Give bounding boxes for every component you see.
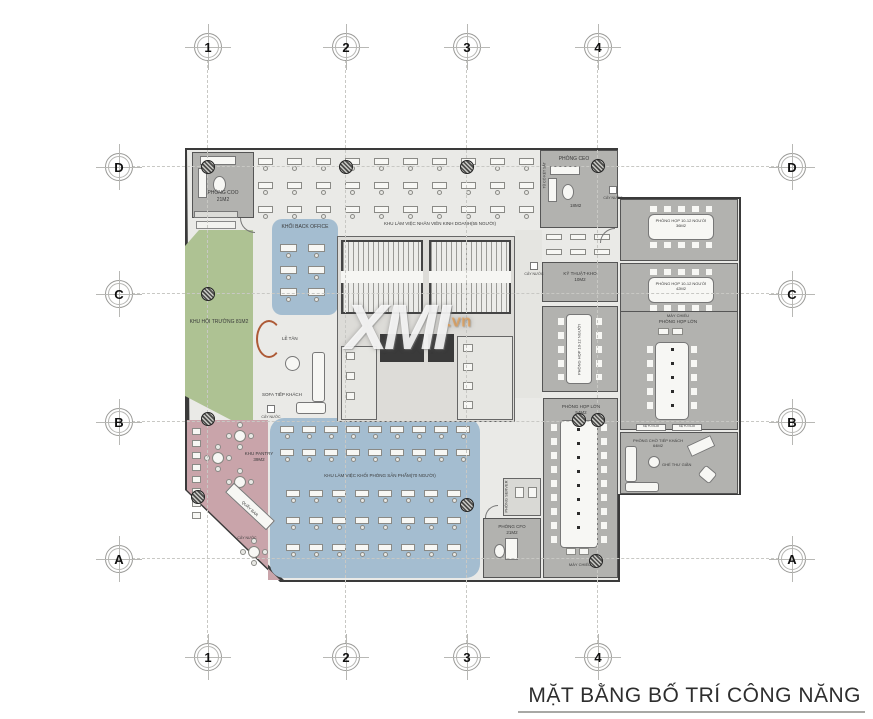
product-desks-band-1 — [280, 426, 294, 433]
column — [591, 413, 605, 427]
back-office-desks — [280, 288, 297, 296]
product-desks-band-2 — [424, 544, 438, 551]
chair — [373, 434, 378, 439]
chair — [452, 525, 457, 530]
back-office-desks — [280, 244, 297, 252]
sofa-horizontal — [296, 402, 326, 414]
product-desks-band-2 — [447, 490, 461, 497]
sales-desks — [316, 182, 331, 189]
projector-screen-north — [658, 328, 669, 335]
chair — [285, 434, 290, 439]
chair — [406, 498, 411, 503]
product-desks-band-2 — [424, 490, 438, 497]
stair-left-landing — [341, 271, 423, 283]
chair — [395, 434, 400, 439]
chair — [373, 457, 378, 462]
product-desks-band-1 — [324, 426, 338, 433]
meeting-large-north-chairs-right — [691, 346, 697, 416]
projector-screen-north — [672, 328, 683, 335]
room-meeting-large-north-label: PHÒNG HỌP LỚN — [643, 319, 713, 325]
chair — [262, 549, 268, 555]
cfo-desk — [505, 538, 518, 560]
chair — [263, 214, 268, 219]
column — [591, 159, 605, 173]
chair — [360, 525, 365, 530]
chair — [408, 190, 413, 195]
product-desks-band-1 — [434, 426, 448, 433]
chair — [337, 525, 342, 530]
product-desks-band-2 — [355, 490, 369, 497]
grid-marker-C: C — [778, 280, 806, 308]
grid-marker-D: D — [778, 153, 806, 181]
chair — [314, 498, 319, 503]
lounge-shelf-1-label: KỆ TỦ KHO — [636, 425, 666, 429]
product-desks-band-2 — [447, 544, 461, 551]
product-desks-band-2 — [355, 544, 369, 551]
coo-lower-cabinet — [194, 211, 238, 218]
meeting-2-chairs-top — [650, 269, 712, 275]
grid-marker-2: 2 — [332, 643, 360, 671]
chair — [329, 434, 334, 439]
pantry-label: KHU PANTRY 39M2 — [240, 451, 278, 463]
product-desks-band-2 — [309, 544, 323, 551]
product-desks-band-1 — [324, 449, 338, 456]
reception-desk — [256, 320, 282, 358]
chair — [237, 444, 243, 450]
back-office-desks — [308, 244, 325, 252]
chair — [452, 552, 457, 557]
chair — [351, 434, 356, 439]
cfo-chair — [494, 544, 505, 558]
product-desks-band-2 — [332, 490, 346, 497]
wc-fixture — [463, 401, 473, 409]
sales-desks — [374, 182, 389, 189]
sales-desks — [403, 206, 418, 213]
team-desks — [570, 234, 586, 240]
chair — [417, 434, 422, 439]
chair — [439, 457, 444, 462]
column — [201, 287, 215, 301]
water-label: CÂY NƯỚC — [598, 196, 628, 201]
chair — [314, 253, 319, 258]
sales-desks — [258, 206, 273, 213]
product-desks-band-2 — [401, 517, 415, 524]
pantry-table — [248, 546, 260, 558]
projector-screen-south — [566, 548, 576, 555]
work-area-sales-label: KHU LÀM VIỆC NHÂN VIÊN KINH DOANH(55 NGƯ… — [330, 221, 550, 227]
projector-screen-south — [579, 548, 589, 555]
sales-desks — [461, 206, 476, 213]
chair — [314, 552, 319, 557]
room-meeting-2-label: PHÒNG HỌP 10-12 NGƯỜI 42M2 — [650, 281, 712, 291]
product-desks-band-2 — [332, 544, 346, 551]
sales-desks — [519, 158, 534, 165]
grid-marker-3: 3 — [453, 33, 481, 61]
pantry-wall-chairs — [192, 428, 201, 435]
chair — [248, 433, 254, 439]
lounge-label: PHÒNG CHỜ TIẾP KHÁCH 64M2 — [626, 438, 690, 448]
chair — [495, 214, 500, 219]
chair — [314, 275, 319, 280]
room-server-label: PHÒNG SERVER — [503, 475, 508, 519]
water-label: CÂY NƯỚC — [519, 272, 549, 277]
chair — [248, 479, 254, 485]
water-label: CÂY NƯỚC — [256, 415, 286, 420]
product-desks-band-2 — [355, 517, 369, 524]
sales-desks — [432, 206, 447, 213]
wc-fixture — [346, 372, 355, 380]
chair — [429, 525, 434, 530]
grid-line-row-D — [132, 166, 779, 167]
pantry-wall-chairs — [192, 464, 201, 471]
server-fixture — [515, 487, 524, 498]
chair — [226, 433, 232, 439]
back-office-desks — [308, 288, 325, 296]
grid-marker-C: C — [105, 280, 133, 308]
product-desks-band-1 — [368, 449, 382, 456]
chair — [285, 457, 290, 462]
sales-desks — [519, 206, 534, 213]
grid-marker-4: 4 — [584, 33, 612, 61]
product-desks-band-2 — [286, 544, 300, 551]
grid-marker-B: B — [105, 408, 133, 436]
product-desks-band-1 — [346, 449, 360, 456]
grid-line-row-B — [132, 421, 779, 422]
column — [572, 413, 586, 427]
product-desks-band-1 — [390, 426, 404, 433]
grid-marker-4: 4 — [584, 643, 612, 671]
ceo-chair — [562, 184, 574, 200]
room-meeting-1-label: PHÒNG HỌP 10-12 NGƯỜI 36M2 — [650, 218, 712, 228]
chair — [291, 498, 296, 503]
meeting-large-south-chairs-right — [601, 424, 607, 544]
chair — [439, 434, 444, 439]
chair — [437, 214, 442, 219]
ceo-desk — [548, 178, 557, 202]
pantry-wall-chairs — [192, 476, 201, 483]
chair — [321, 214, 326, 219]
plan-title: MẶT BẰNG BỐ TRÍ CÔNG NĂNG — [518, 684, 865, 713]
chair — [321, 190, 326, 195]
grid-line-col-1 — [207, 60, 208, 648]
room-ceo-label: PHÒNG CEO — [550, 156, 598, 163]
product-desks-band-2 — [378, 544, 392, 551]
chair — [237, 468, 243, 474]
reception-label: LỄ TÂN — [282, 336, 312, 342]
watermark: XMI.vn — [345, 290, 471, 364]
chair — [360, 498, 365, 503]
product-desks-band-2 — [378, 490, 392, 497]
room-tech-label: KỸ THUẬT-KHO 10M2 — [546, 271, 614, 283]
product-desks-band-2 — [378, 517, 392, 524]
team-desks — [546, 234, 562, 240]
chair — [383, 498, 388, 503]
water-dispenser — [267, 405, 275, 413]
chair — [524, 190, 529, 195]
product-desks-band-1 — [280, 449, 294, 456]
wc-fixture — [463, 382, 473, 390]
column — [460, 498, 474, 512]
chair — [429, 498, 434, 503]
meeting-1-chairs-top — [650, 206, 712, 212]
column — [201, 412, 215, 426]
product-desks-band-2 — [424, 517, 438, 524]
chair — [406, 552, 411, 557]
chair — [452, 498, 457, 503]
sales-desks — [258, 182, 273, 189]
room-coo-label: PHÒNG COO 21M2 — [196, 190, 250, 203]
ceo-cabinet — [550, 166, 580, 175]
product-desks-band-2 — [309, 517, 323, 524]
chair — [307, 457, 312, 462]
chair — [417, 457, 422, 462]
corridor-mid — [515, 230, 542, 398]
back-office-desks — [308, 266, 325, 274]
chair — [329, 457, 334, 462]
sales-desks — [403, 182, 418, 189]
product-desks-band-2 — [332, 517, 346, 524]
product-desks-band-1 — [412, 426, 426, 433]
projector-label-north: MÁY CHIẾU — [648, 313, 708, 318]
lobby-cabinet — [196, 221, 236, 229]
grid-marker-1: 1 — [194, 643, 222, 671]
chair — [307, 434, 312, 439]
sales-desks — [258, 158, 273, 165]
pantry-wall-chairs — [192, 452, 201, 459]
lounge-sofa-horizontal — [625, 482, 659, 492]
chair — [406, 525, 411, 530]
chair — [292, 190, 297, 195]
room-meeting-mid-label: PHÒNG HỌP 10-12 NGƯỜI — [576, 315, 581, 385]
chair — [337, 498, 342, 503]
chair — [292, 214, 297, 219]
product-desks-band-1 — [346, 426, 360, 433]
sofa-label: SOFA TIẾP KHÁCH — [262, 392, 314, 398]
back-office-desks — [280, 266, 297, 274]
grid-marker-A: A — [105, 545, 133, 573]
chair — [240, 549, 246, 555]
meeting-mid-chairs-left — [558, 318, 564, 380]
grid-marker-1: 1 — [194, 33, 222, 61]
reception-table — [285, 356, 300, 371]
meeting-1-chairs-bottom — [650, 242, 712, 248]
sales-desks — [287, 182, 302, 189]
sales-desks — [345, 206, 360, 213]
pantry-table — [234, 430, 246, 442]
chair — [408, 214, 413, 219]
sales-desks — [374, 206, 389, 213]
product-desks-band-1 — [456, 426, 470, 433]
chair — [251, 560, 257, 566]
sales-desks — [490, 182, 505, 189]
product-desks-band-1 — [434, 449, 448, 456]
product-desks-band-2 — [286, 490, 300, 497]
chair — [226, 455, 232, 461]
meeting-large-south-dots — [577, 428, 580, 540]
chair — [379, 214, 384, 219]
wc-fixture — [346, 392, 355, 400]
column — [201, 160, 215, 174]
grid-marker-D: D — [105, 153, 133, 181]
column — [460, 160, 474, 174]
sales-desks — [461, 182, 476, 189]
product-desks-band-1 — [390, 449, 404, 456]
meeting-large-south-chairs-left — [551, 424, 557, 544]
grid-marker-B: B — [778, 408, 806, 436]
chair — [495, 190, 500, 195]
chair — [383, 525, 388, 530]
grid-line-row-A — [132, 558, 779, 559]
chair — [360, 552, 365, 557]
back-office-label: KHỐI BACK OFFICE — [274, 224, 336, 231]
sales-desks — [519, 182, 534, 189]
pantry-wall-chairs — [192, 512, 201, 519]
product-desks-band-2 — [447, 517, 461, 524]
meeting-large-north-chairs-left — [647, 346, 653, 416]
chair — [263, 190, 268, 195]
pantry-wall-chairs — [192, 440, 201, 447]
chair — [237, 422, 243, 428]
water-dispenser — [609, 186, 617, 194]
chair — [437, 190, 442, 195]
grid-marker-2: 2 — [332, 33, 360, 61]
sales-desks — [374, 158, 389, 165]
chair — [215, 466, 221, 472]
work-area-product-zone — [270, 418, 480, 578]
grid-marker-3: 3 — [453, 643, 481, 671]
column — [339, 160, 353, 174]
sales-desks — [432, 158, 447, 165]
product-desks-band-2 — [401, 490, 415, 497]
server-fixture — [528, 487, 537, 498]
chair — [286, 297, 291, 302]
floor-plan: XMI.vn MẶT BẰNG BỐ TRÍ CÔNG NĂNG PHÒNG C… — [0, 0, 873, 719]
stair-right-landing — [429, 271, 511, 283]
sales-desks — [490, 206, 505, 213]
sales-desks — [316, 158, 331, 165]
product-desks-band-1 — [456, 449, 470, 456]
chair — [429, 552, 434, 557]
sales-desks — [287, 206, 302, 213]
chair — [314, 525, 319, 530]
chair — [383, 552, 388, 557]
product-desks-band-2 — [309, 490, 323, 497]
ceo-safe-label: TỦ CÓ KÉT SẮT — [543, 153, 548, 197]
chair — [350, 190, 355, 195]
grid-marker-A: A — [778, 545, 806, 573]
water-dispenser — [530, 262, 538, 270]
meeting-large-north-dots — [671, 348, 674, 412]
room-ceo-area-label: 18M2 — [570, 203, 600, 209]
sales-desks — [287, 158, 302, 165]
watermark-text: XMI — [345, 291, 447, 363]
team-desks — [546, 249, 562, 255]
product-desks-band-1 — [412, 449, 426, 456]
room-cfo-label: PHÒNG CFO 21M2 — [488, 524, 536, 536]
lounge-sofa-vertical — [625, 446, 637, 482]
watermark-suffix: .vn — [447, 312, 472, 331]
product-desks-band-2 — [401, 544, 415, 551]
chair — [379, 190, 384, 195]
lounge-shelf-2-label: KỆ TỦ KHO — [672, 425, 702, 429]
work-area-product-label: KHU LÀM VIỆC KHỐI PHÒNG SẢN PHẨM(70 NGƯỜ… — [288, 473, 472, 479]
chair — [524, 214, 529, 219]
column — [191, 490, 205, 504]
relax-chair-label: GHẾ THƯ GIÃN — [662, 462, 708, 467]
chair — [351, 457, 356, 462]
chair — [286, 253, 291, 258]
product-desks-band-1 — [368, 426, 382, 433]
sales-desks — [432, 182, 447, 189]
sales-desks — [403, 158, 418, 165]
chair — [286, 275, 291, 280]
chair — [215, 444, 221, 450]
sales-desks — [345, 182, 360, 189]
hall-label: KHU HỘI TRƯỜNG 81M2 — [188, 319, 250, 326]
chair — [314, 297, 319, 302]
chair — [291, 552, 296, 557]
product-desks-band-2 — [286, 517, 300, 524]
lounge-table — [648, 456, 660, 468]
chair — [337, 552, 342, 557]
column — [589, 554, 603, 568]
product-desks-band-1 — [302, 426, 316, 433]
sales-desks — [490, 158, 505, 165]
wc-fixture — [463, 363, 473, 371]
sales-desks — [316, 206, 331, 213]
chair — [350, 214, 355, 219]
team-desks — [570, 249, 586, 255]
chair — [395, 457, 400, 462]
pantry-table — [212, 452, 224, 464]
product-desks-band-1 — [302, 449, 316, 456]
chair — [291, 525, 296, 530]
water-label: CÂY NƯỚC — [232, 536, 262, 541]
